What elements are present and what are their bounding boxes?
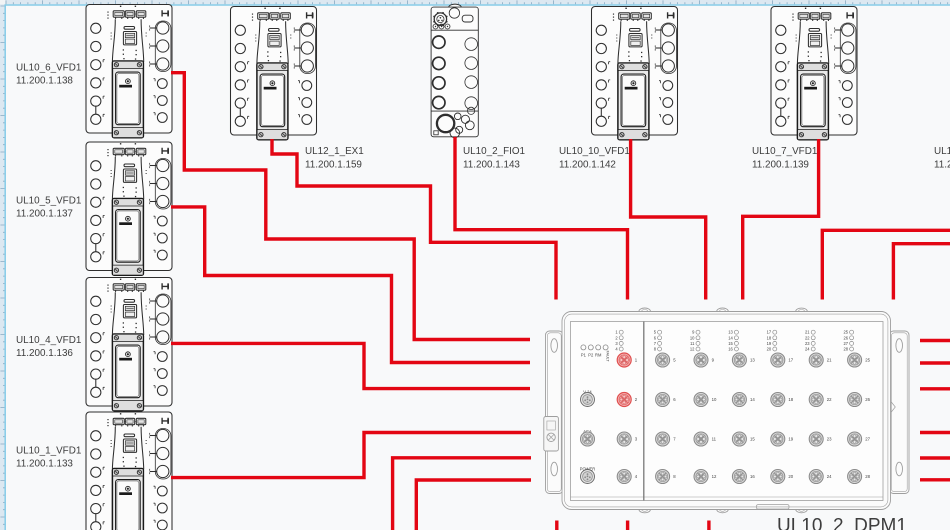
svg-text:11.200.1.159: 11.200.1.159 xyxy=(305,160,362,171)
svg-text:27: 27 xyxy=(843,341,848,346)
svg-text:25: 25 xyxy=(865,358,870,363)
svg-text:17: 17 xyxy=(788,358,793,363)
svg-text:15: 15 xyxy=(750,437,755,442)
svg-text:11.200.1.133: 11.200.1.133 xyxy=(16,459,73,470)
svg-text:16: 16 xyxy=(750,474,755,479)
svg-text:UL10_4_VFD1: UL10_4_VFD1 xyxy=(16,335,82,346)
svg-text:UL10_2_FIO1: UL10_2_FIO1 xyxy=(463,146,526,157)
svg-text:13: 13 xyxy=(750,358,755,363)
svg-text:23: 23 xyxy=(805,341,810,346)
svg-text:28: 28 xyxy=(865,474,870,479)
svg-text:UL10_7_VFD1: UL10_7_VFD1 xyxy=(752,146,818,157)
svg-text:24: 24 xyxy=(805,347,810,352)
svg-text:UL10_6_VFD1: UL10_6_VFD1 xyxy=(16,63,82,74)
svg-text:24: 24 xyxy=(827,474,832,479)
svg-text:14: 14 xyxy=(750,397,755,402)
svg-text:22: 22 xyxy=(805,335,810,340)
svg-text:11: 11 xyxy=(690,341,695,346)
svg-text:11.200.1.136: 11.200.1.136 xyxy=(16,348,73,359)
svg-text:20: 20 xyxy=(788,474,793,479)
svg-text:16: 16 xyxy=(728,347,733,352)
svg-text:26: 26 xyxy=(843,335,848,340)
svg-text:11.200.1.140: 11.200.1.140 xyxy=(934,160,950,171)
svg-text:P1: P1 xyxy=(581,352,587,357)
svg-text:18: 18 xyxy=(767,335,772,340)
svg-text:22: 22 xyxy=(827,397,832,402)
svg-text:26: 26 xyxy=(865,397,870,402)
svg-text:23: 23 xyxy=(827,437,832,442)
svg-text:UL10_10_VFD1: UL10_10_VFD1 xyxy=(559,146,630,157)
svg-text:11.200.1.137: 11.200.1.137 xyxy=(16,209,73,220)
svg-text:UL10_9_VFD1: UL10_9_VFD1 xyxy=(934,146,950,157)
svg-text:18: 18 xyxy=(788,397,793,402)
svg-text:UL10_2_DPM1: UL10_2_DPM1 xyxy=(777,516,907,530)
svg-text:12: 12 xyxy=(712,474,717,479)
svg-text:17: 17 xyxy=(767,330,772,335)
svg-text:28: 28 xyxy=(843,347,848,352)
svg-text:11.200.1.143: 11.200.1.143 xyxy=(463,160,520,171)
svg-text:21: 21 xyxy=(805,330,810,335)
svg-text:P2: P2 xyxy=(588,352,594,357)
svg-text:20: 20 xyxy=(767,347,772,352)
svg-text:UL10_5_VFD1: UL10_5_VFD1 xyxy=(16,196,82,207)
svg-text:19: 19 xyxy=(767,341,772,346)
svg-text:UL12_1_EX1: UL12_1_EX1 xyxy=(305,146,364,157)
svg-text:RM: RM xyxy=(595,352,602,357)
svg-text:10: 10 xyxy=(712,397,717,402)
svg-text:FAULT: FAULT xyxy=(606,351,610,363)
svg-text:UL10_1_VFD1: UL10_1_VFD1 xyxy=(16,446,82,457)
svg-text:11.200.1.142: 11.200.1.142 xyxy=(559,160,616,171)
svg-text:10: 10 xyxy=(690,335,695,340)
svg-text:27: 27 xyxy=(865,437,870,442)
svg-text:12: 12 xyxy=(690,347,695,352)
svg-text:25: 25 xyxy=(843,330,848,335)
svg-text:11.200.1.138: 11.200.1.138 xyxy=(16,76,73,87)
svg-text:13: 13 xyxy=(728,330,733,335)
svg-text:15: 15 xyxy=(728,341,733,346)
svg-text:14: 14 xyxy=(728,335,733,340)
svg-text:19: 19 xyxy=(788,437,793,442)
svg-text:11: 11 xyxy=(712,437,717,442)
svg-text:11.200.1.139: 11.200.1.139 xyxy=(752,160,809,171)
svg-text:21: 21 xyxy=(827,358,832,363)
